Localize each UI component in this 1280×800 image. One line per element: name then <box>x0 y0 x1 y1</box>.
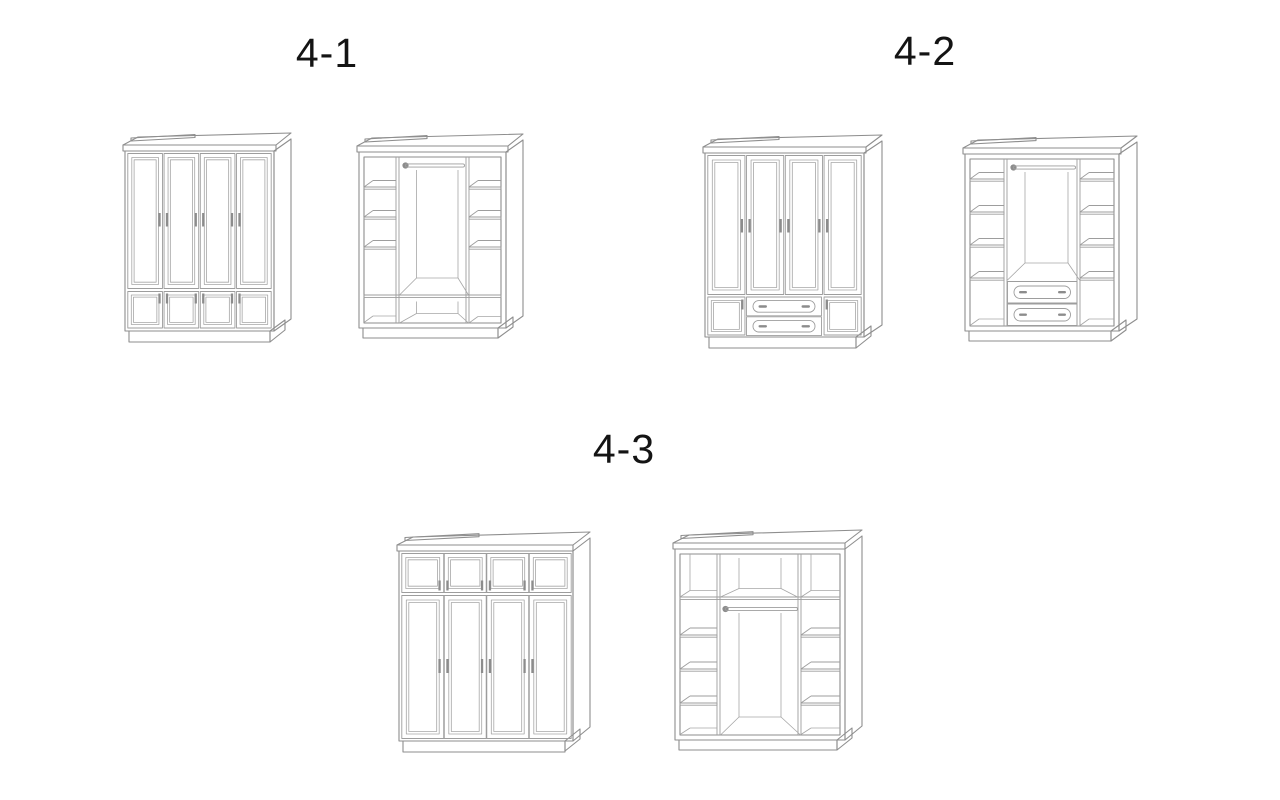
wardrobe-4-3-closed-view <box>395 527 603 759</box>
bottom-compartments <box>364 302 501 324</box>
wardrobe-4-1-interior-view <box>355 130 533 342</box>
tall-doors <box>402 596 571 739</box>
hanging-rod <box>1010 164 1075 170</box>
wardrobe-4-2-interior-view <box>961 132 1153 347</box>
wardrobe-diagram-sheet: 4-1 4-2 4-3 <box>0 0 1280 800</box>
top-back-rail <box>681 532 753 539</box>
tall-doors <box>708 156 861 295</box>
top-back-rail <box>365 136 427 142</box>
middle-back-wall <box>400 170 469 295</box>
bottom-compartments <box>970 319 1114 326</box>
hanging-rod <box>722 606 797 612</box>
side-panel <box>864 141 882 337</box>
vertical-dividers <box>717 554 801 735</box>
carcass <box>357 134 523 338</box>
figure-label-4-3: 4-3 <box>554 429 694 470</box>
wardrobe-4-1-closed-view <box>121 129 301 345</box>
top-back-rail <box>131 135 195 142</box>
plinth <box>129 331 270 342</box>
left-shelves <box>970 173 1004 281</box>
left-shelves <box>364 181 396 250</box>
drawers <box>1008 282 1078 326</box>
side-panel <box>1119 142 1137 331</box>
top-row-compartments <box>680 554 840 600</box>
side-panel <box>274 139 291 331</box>
figure-label-4-1: 4-1 <box>257 33 397 74</box>
plinth <box>363 328 498 338</box>
plinth <box>403 741 565 752</box>
hanging-rod <box>402 162 464 168</box>
wardrobe-4-2-closed-view <box>701 131 893 353</box>
small-doors <box>128 292 271 329</box>
full-width-shelf <box>364 295 501 298</box>
middle-back-wall <box>721 613 801 735</box>
wardrobe-4-3-interior-view <box>671 525 879 760</box>
plinth <box>679 740 837 750</box>
plinth <box>969 331 1111 341</box>
right-shelves <box>801 628 840 705</box>
right-shelves <box>1080 173 1114 281</box>
right-shelves <box>469 181 501 250</box>
top-back-rail <box>405 534 479 541</box>
middle-back-wall <box>1008 172 1080 280</box>
side-panel <box>845 536 862 740</box>
top-small-doors <box>402 554 571 593</box>
bottom-compartments <box>680 728 840 735</box>
plinth <box>709 337 856 348</box>
side-panel <box>573 538 590 741</box>
left-shelves <box>680 628 717 705</box>
vertical-dividers <box>1004 159 1080 326</box>
drawers <box>747 297 822 336</box>
side-panel <box>506 140 523 328</box>
top-back-rail <box>711 137 779 144</box>
top-back-rail <box>971 138 1036 144</box>
figure-label-4-2: 4-2 <box>855 31 995 72</box>
tall-doors <box>128 154 271 289</box>
